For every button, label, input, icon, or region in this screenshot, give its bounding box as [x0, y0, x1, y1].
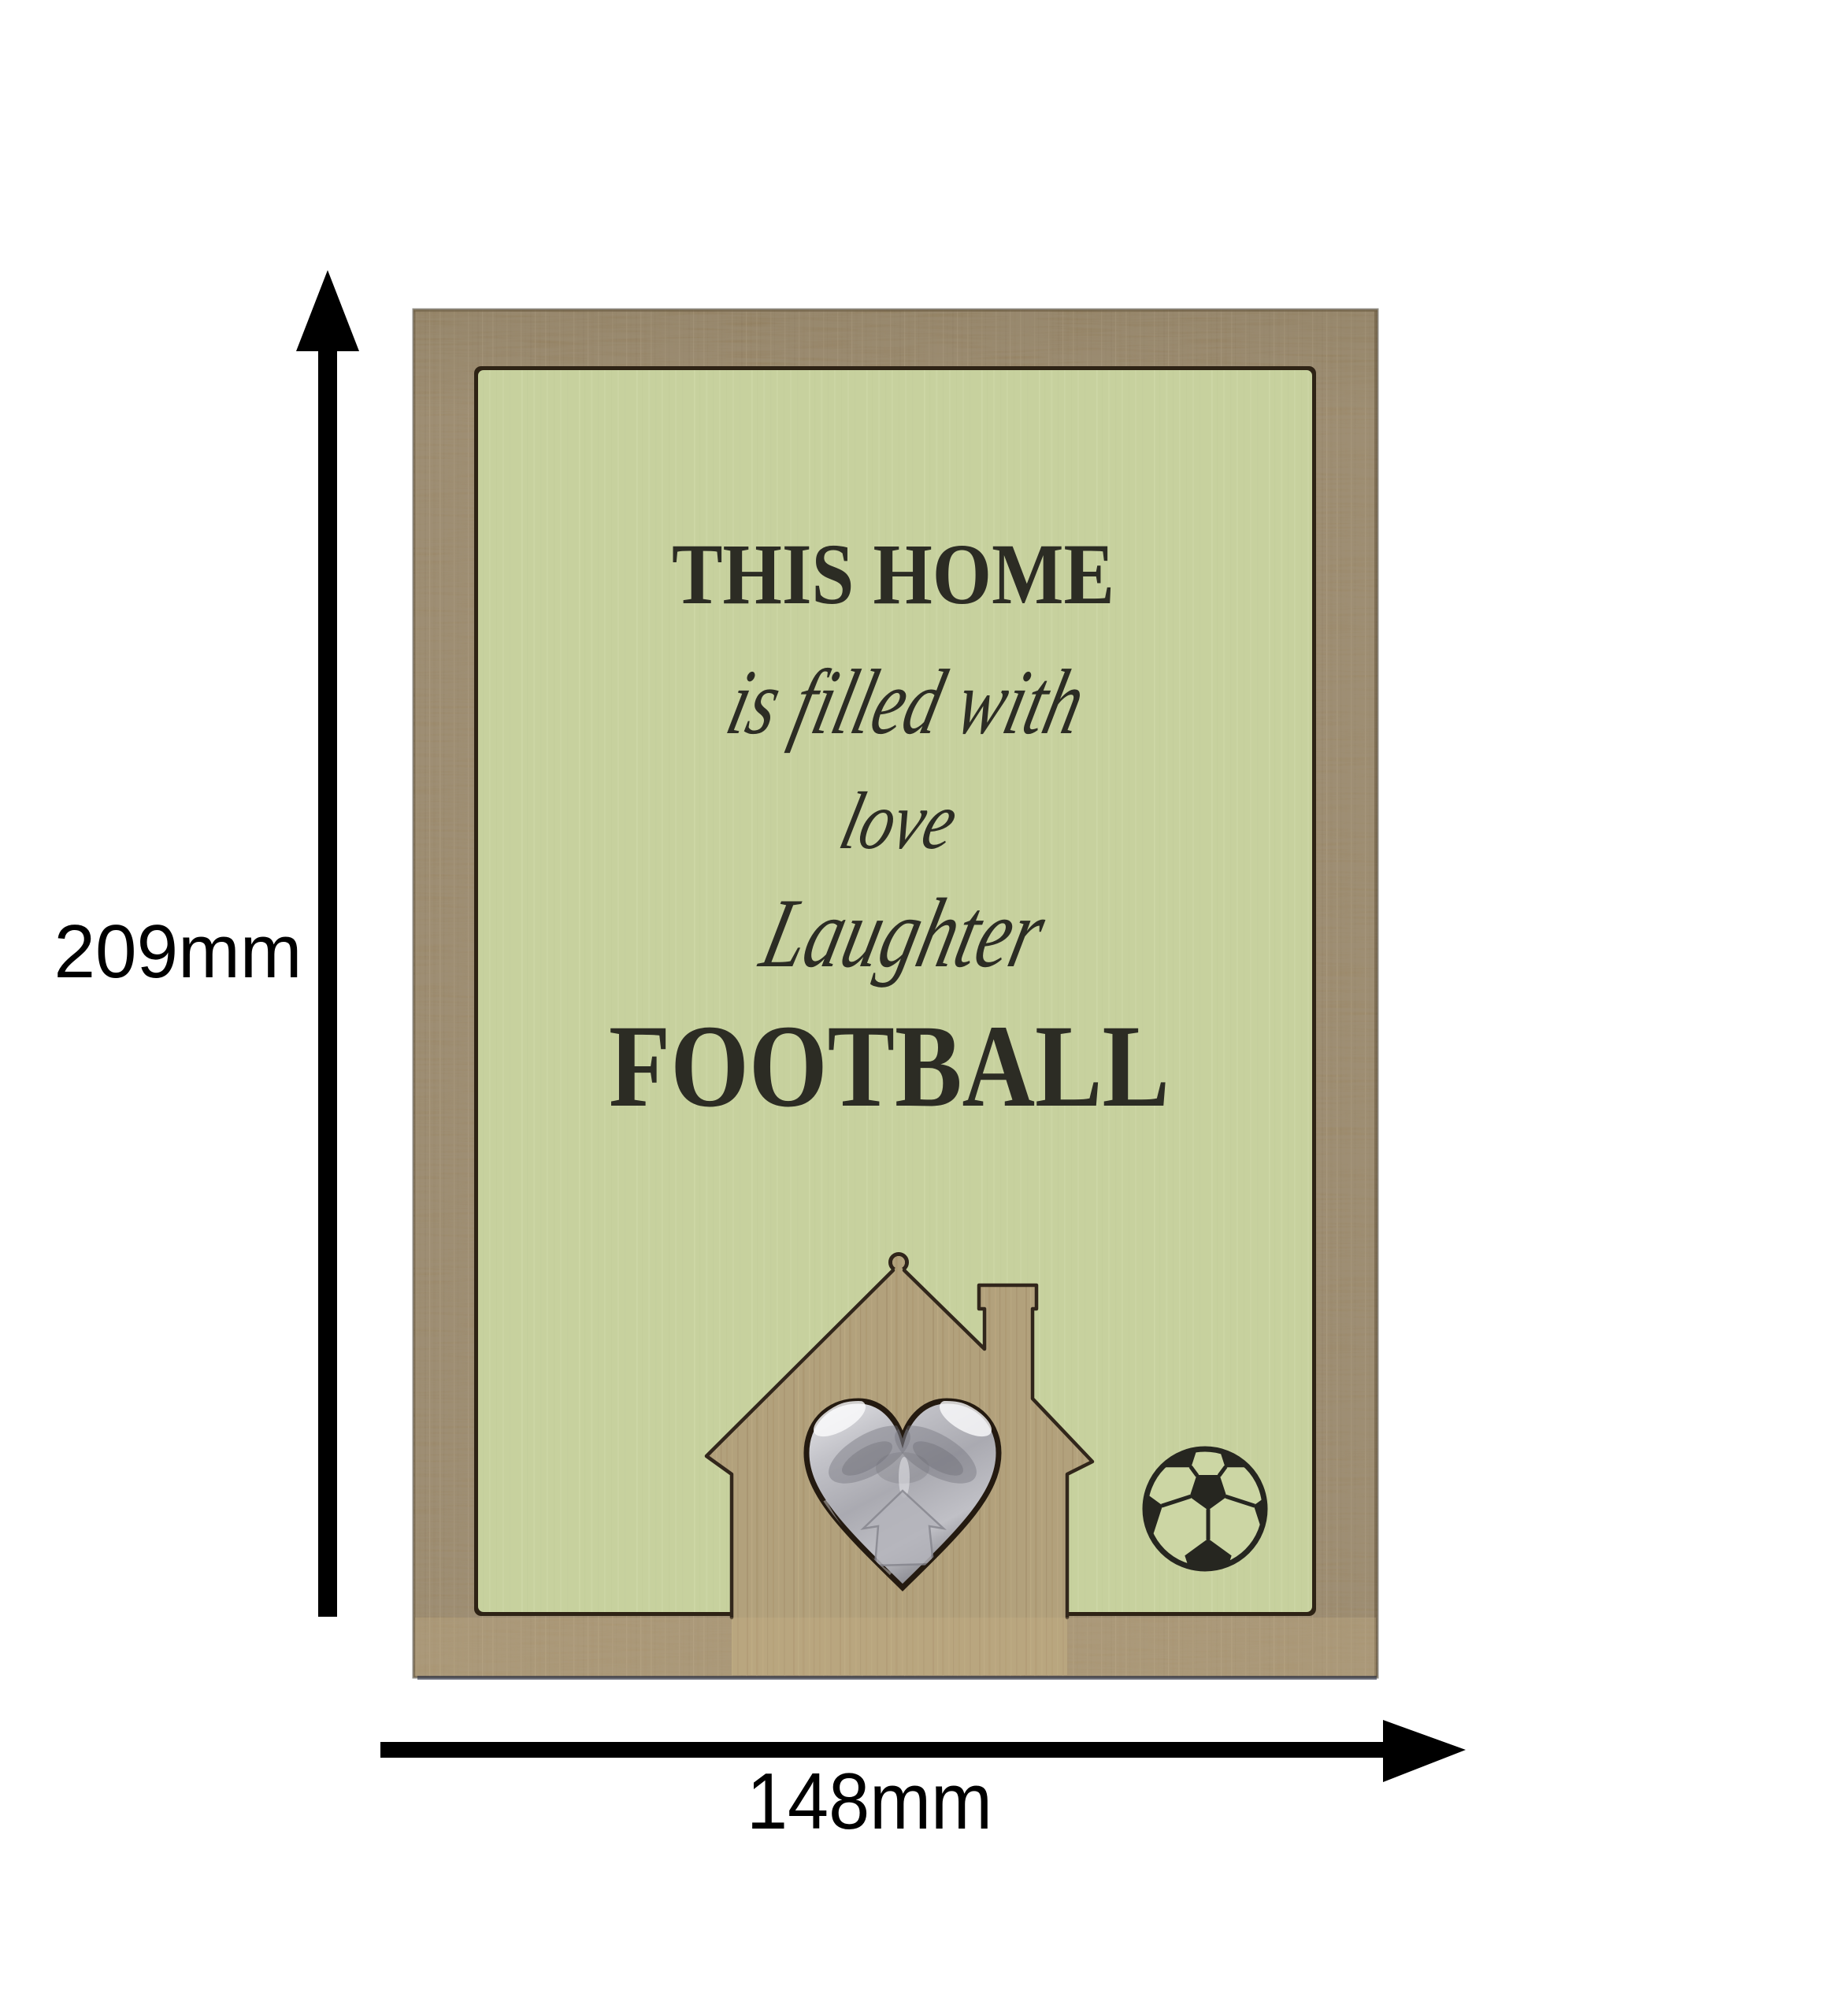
svg-text:THIS HOME: THIS HOME	[672, 526, 1114, 622]
svg-text:love: love	[832, 775, 966, 865]
svg-text:148mm: 148mm	[747, 1758, 992, 1846]
svg-text:209mm: 209mm	[54, 910, 302, 994]
svg-text:Laughter: Laughter	[751, 878, 1056, 988]
svg-text:FOOTBALL: FOOTBALL	[609, 1001, 1170, 1132]
svg-text:is filled with: is filled with	[718, 650, 1096, 754]
